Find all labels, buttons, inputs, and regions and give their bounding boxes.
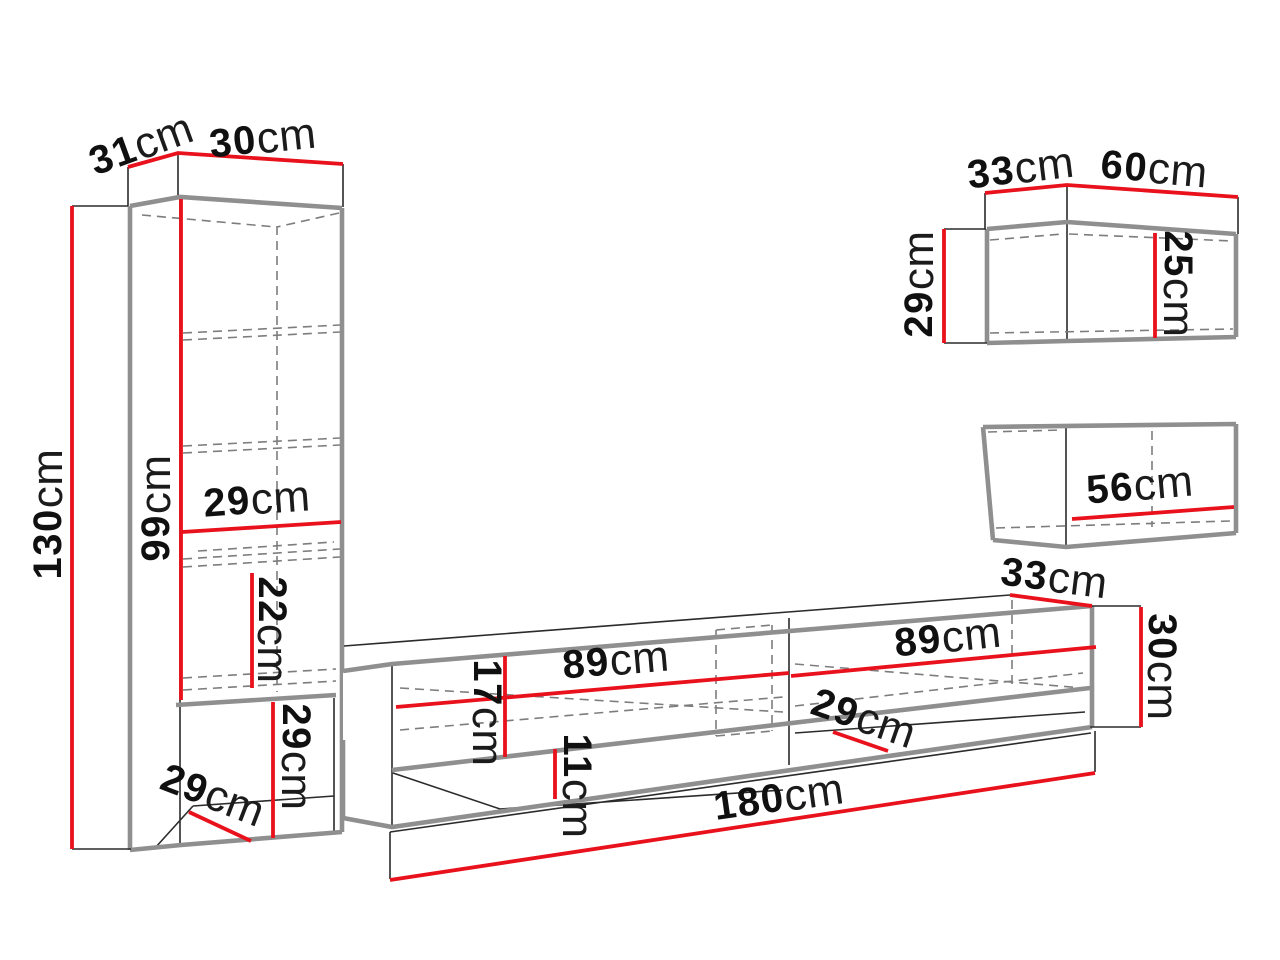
dim-label-tall-niche-height: 29cm [272,703,321,810]
dim-label-tall-height: 130cm [23,449,72,580]
upper-cabinet-connectors [944,229,987,343]
dim-label-tall-inner-width: 29cm [202,471,312,527]
dim-label-tv-lower-height: 11cm [553,734,602,839]
dim-label-tall-top-width: 30cm [207,108,319,168]
dim-label-tall-shelf-spacing: 22cm [248,576,297,683]
dim-label-tall-inner-height: 99cm [131,454,180,561]
dim-label-tv-open-height: 17cm [463,659,512,766]
dim-label-upper-height: 29cm [894,230,943,337]
tall-height-connectors [72,206,131,849]
furniture-dimensions-diagram: 31cm 30cm 130cm 99cm 29cm 22cm 29cm 29cm… [0,0,1280,960]
dim-label-tv-side-height: 30cm [1138,613,1187,720]
dim-label-upper-inner-height: 25cm [1154,230,1203,337]
tv-stand [343,595,1141,880]
